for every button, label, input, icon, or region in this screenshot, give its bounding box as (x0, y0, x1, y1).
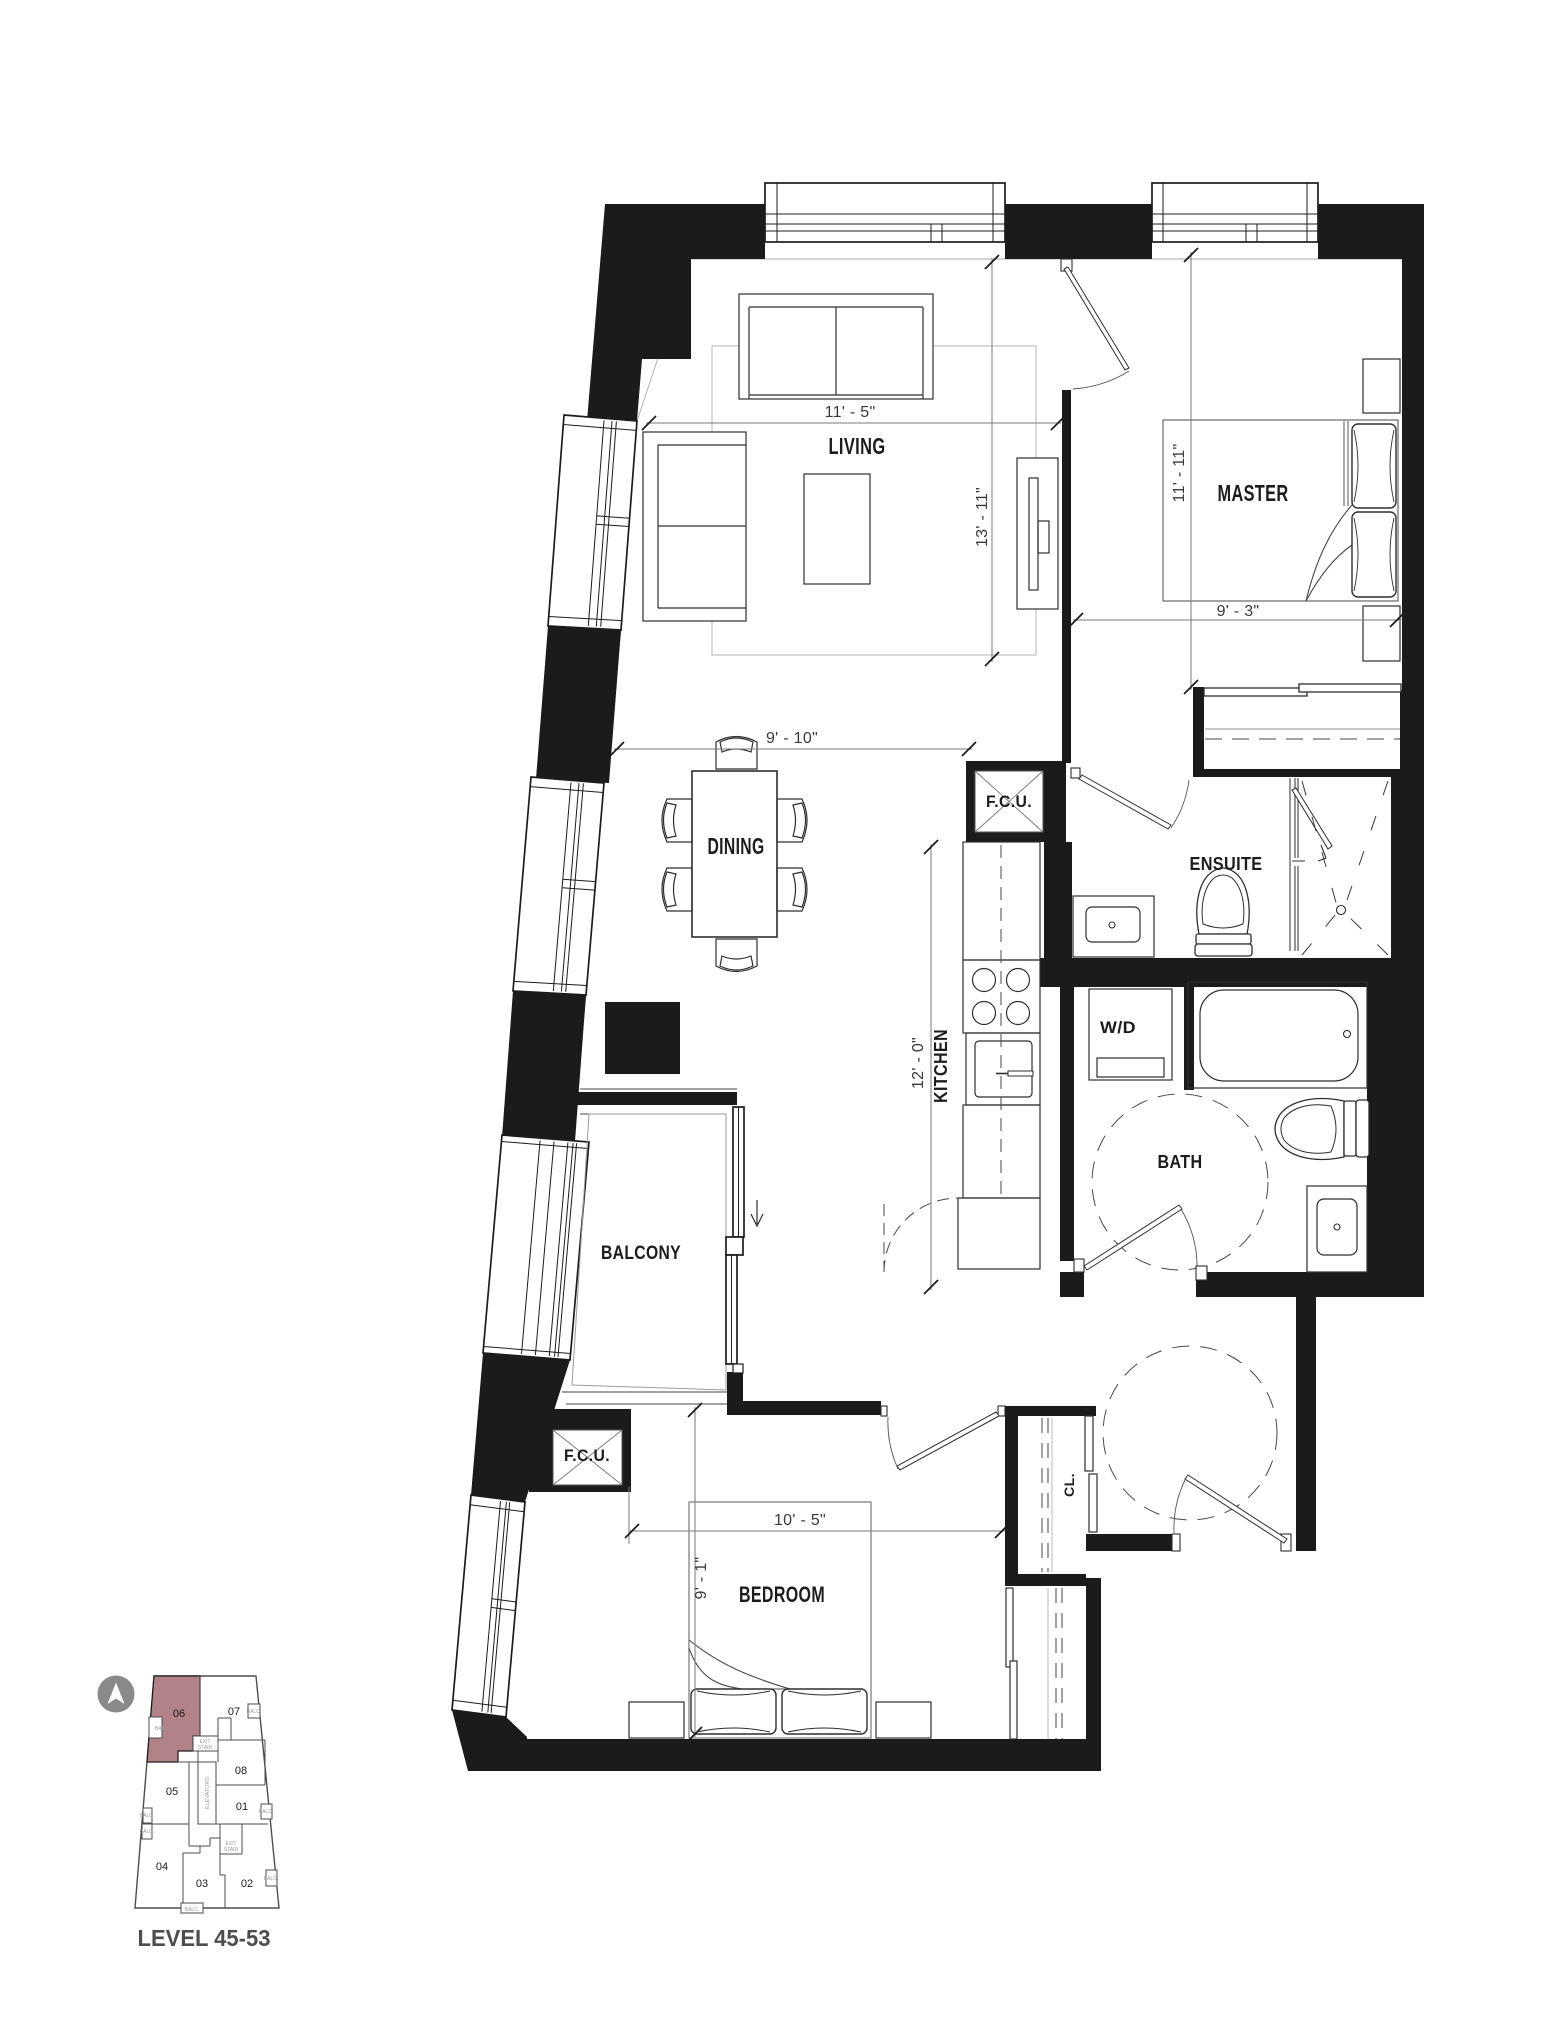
svg-text:BALC.: BALC. (259, 1809, 273, 1815)
svg-text:11' - 5": 11' - 5" (825, 404, 876, 421)
svg-text:06: 06 (173, 1708, 185, 1720)
svg-text:BALC.: BALC. (140, 1813, 154, 1819)
svg-text:BALC.: BALC. (155, 1726, 169, 1732)
svg-text:9' - 3": 9' - 3" (1217, 603, 1260, 620)
svg-text:10' - 5": 10' - 5" (774, 1512, 826, 1529)
svg-text:12' - 0": 12' - 0" (910, 1037, 927, 1089)
svg-text:BEDROOM: BEDROOM (739, 1582, 825, 1607)
svg-text:08: 08 (235, 1765, 247, 1777)
svg-text:BATH: BATH (1158, 1152, 1203, 1172)
svg-text:9' - 1": 9' - 1" (693, 1557, 710, 1600)
svg-text:MASTER: MASTER (1218, 480, 1289, 506)
svg-text:STAIR: STAIR (224, 1847, 239, 1853)
svg-text:13' - 11": 13' - 11" (974, 487, 991, 547)
svg-text:DINING: DINING (708, 833, 765, 859)
svg-text:11' - 11": 11' - 11" (1171, 444, 1188, 503)
svg-text:ELEVATORS: ELEVATORS (205, 1777, 211, 1809)
svg-text:04: 04 (156, 1861, 168, 1873)
svg-text:KITCHEN: KITCHEN (931, 1029, 951, 1103)
svg-text:BALC.: BALC. (185, 1907, 199, 1913)
svg-text:F.C.U.: F.C.U. (564, 1446, 610, 1465)
svg-text:01: 01 (236, 1801, 248, 1813)
svg-text:LIVING: LIVING (829, 433, 886, 459)
svg-text:05: 05 (166, 1786, 178, 1798)
svg-text:CL.: CL. (1061, 1473, 1077, 1497)
svg-text:BALC.: BALC. (264, 1876, 278, 1882)
svg-text:STAIR: STAIR (198, 1745, 213, 1751)
svg-text:03: 03 (196, 1878, 208, 1890)
svg-text:F.C.U.: F.C.U. (986, 792, 1032, 811)
svg-text:W/D: W/D (1100, 1018, 1136, 1037)
svg-text:07: 07 (228, 1706, 240, 1718)
svg-text:LEVEL 45-53: LEVEL 45-53 (138, 1925, 271, 1951)
svg-text:BALC.: BALC. (247, 1709, 261, 1715)
svg-text:02: 02 (241, 1878, 253, 1890)
svg-text:ENSUITE: ENSUITE (1190, 854, 1263, 874)
svg-text:BALC.: BALC. (140, 1829, 154, 1835)
svg-text:BALCONY: BALCONY (601, 1243, 681, 1264)
svg-text:9' - 10": 9' - 10" (766, 730, 818, 747)
